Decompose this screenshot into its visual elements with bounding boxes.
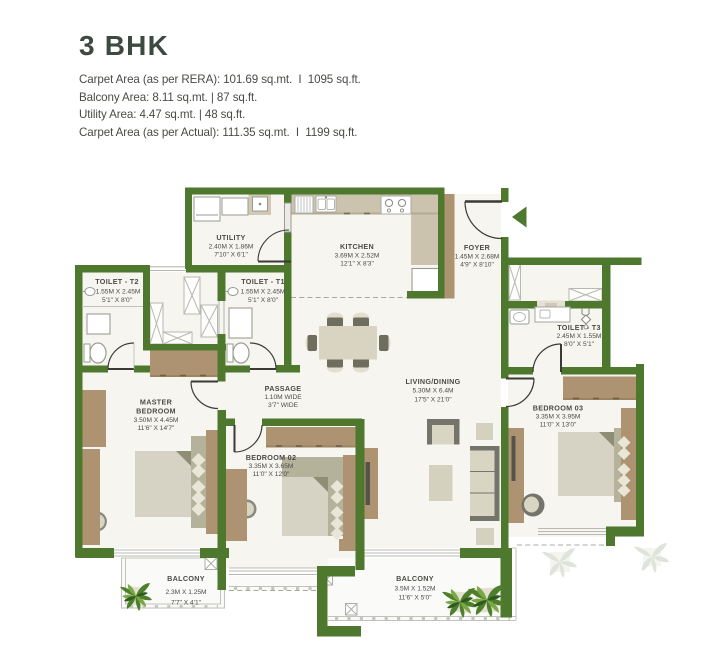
- svg-text:3.35M X 3.95M: 3.35M X 3.95M: [536, 414, 581, 421]
- svg-text:BALCONY: BALCONY: [396, 574, 434, 583]
- svg-text:3'7" WIDE: 3'7" WIDE: [268, 402, 299, 409]
- svg-text:2.45M X 1.55M: 2.45M X 1.55M: [557, 333, 602, 340]
- svg-text:TOILET - T2: TOILET - T2: [95, 277, 139, 286]
- svg-text:3.5M X 1.52M: 3.5M X 1.52M: [394, 586, 435, 593]
- svg-text:1.55M X 2.45M: 1.55M X 2.45M: [96, 289, 141, 296]
- svg-text:KITCHEN: KITCHEN: [340, 242, 374, 251]
- svg-text:BEDROOM 02: BEDROOM 02: [246, 453, 297, 462]
- svg-text:7'7" X 4'1": 7'7" X 4'1": [171, 600, 202, 607]
- svg-text:BEDROOM 03: BEDROOM 03: [533, 404, 584, 413]
- svg-text:8'0" X 5'1": 8'0" X 5'1": [564, 341, 595, 348]
- svg-text:11'0" X 13'0": 11'0" X 13'0": [540, 422, 577, 429]
- svg-text:3.50M X 4.45M: 3.50M X 4.45M: [134, 417, 179, 424]
- svg-text:MASTER: MASTER: [140, 398, 173, 407]
- svg-text:5.30M X 6.4M: 5.30M X 6.4M: [412, 388, 453, 395]
- svg-text:PASSAGE: PASSAGE: [265, 384, 302, 393]
- svg-text:12'1" X 8'3": 12'1" X 8'3": [340, 261, 374, 268]
- svg-text:11'6" X 14'7": 11'6" X 14'7": [138, 425, 175, 432]
- svg-text:1.10M WIDE: 1.10M WIDE: [264, 394, 302, 401]
- svg-text:TOILET - T1: TOILET - T1: [241, 277, 285, 286]
- svg-text:1.45M X 2.68M: 1.45M X 2.68M: [455, 254, 500, 261]
- svg-text:UTILITY: UTILITY: [216, 233, 245, 242]
- svg-text:5'1" X 8'0": 5'1" X 8'0": [102, 297, 133, 304]
- svg-text:11'6" X 5'0": 11'6" X 5'0": [398, 595, 432, 602]
- svg-text:FOYER: FOYER: [464, 243, 491, 252]
- svg-text:TOILET - T3: TOILET - T3: [557, 323, 601, 332]
- svg-text:1.55M X 2.45M: 1.55M X 2.45M: [241, 289, 286, 296]
- svg-text:3.35M X 3.65M: 3.35M X 3.65M: [249, 463, 294, 470]
- svg-text:7'10" X 6'1": 7'10" X 6'1": [214, 252, 248, 259]
- svg-text:5'1" X 8'0": 5'1" X 8'0": [248, 297, 279, 304]
- svg-text:4'9" X 8'10": 4'9" X 8'10": [460, 262, 494, 269]
- svg-text:BEDROOM: BEDROOM: [136, 407, 176, 416]
- svg-text:LIVING/DINING: LIVING/DINING: [405, 377, 460, 386]
- svg-text:BALCONY: BALCONY: [167, 574, 205, 583]
- svg-text:3.69M X 2.52M: 3.69M X 2.52M: [335, 253, 380, 260]
- svg-text:17'5" X 21'0": 17'5" X 21'0": [414, 397, 452, 404]
- svg-text:2.40M X 1.86M: 2.40M X 1.86M: [209, 244, 254, 251]
- svg-text:11'0" X 12'0": 11'0" X 12'0": [253, 471, 290, 478]
- svg-text:2.3M X 1.25M: 2.3M X 1.25M: [165, 589, 206, 596]
